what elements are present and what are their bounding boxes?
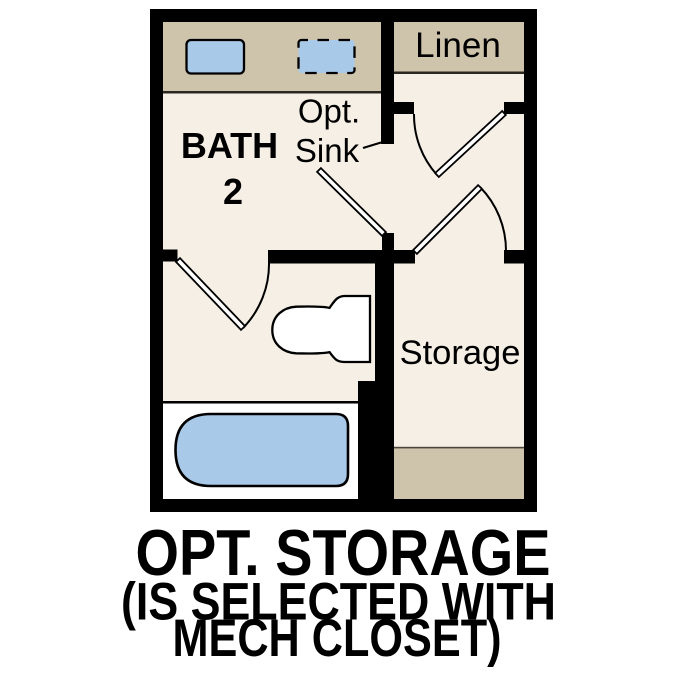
svg-text:Sink: Sink [295,132,360,169]
svg-text:MECH CLOSET): MECH CLOSET) [173,609,502,668]
svg-text:Opt.: Opt. [298,93,360,130]
svg-text:Linen: Linen [415,26,501,65]
svg-text:Storage: Storage [400,334,521,372]
svg-text:BATH: BATH [181,125,278,166]
svg-text:2: 2 [223,171,243,212]
